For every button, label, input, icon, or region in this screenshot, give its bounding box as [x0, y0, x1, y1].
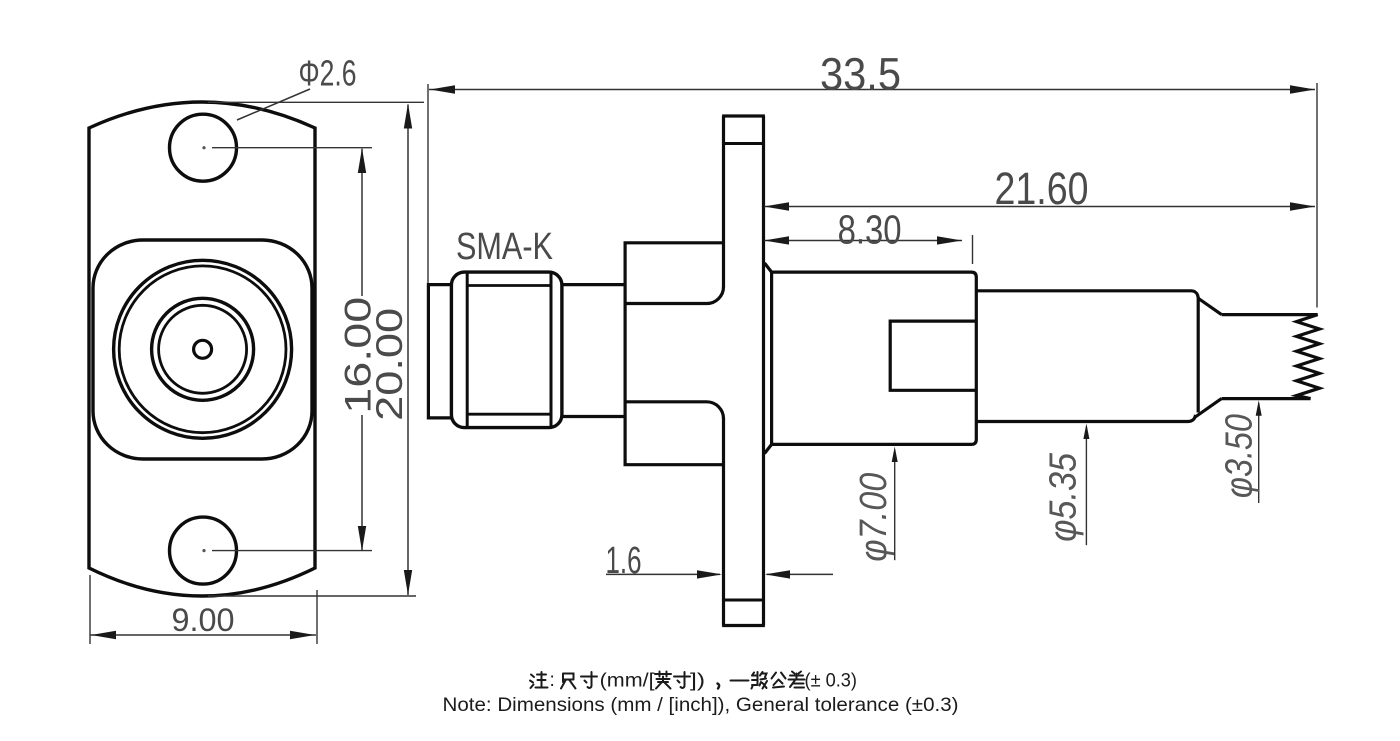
svg-text:SMA-K: SMA-K [456, 226, 553, 268]
svg-text:Note: Dimensions (mm / [inch]): Note: Dimensions (mm / [inch]), General … [443, 694, 959, 716]
svg-text:(± 0.3): (± 0.3) [805, 671, 858, 692]
svg-text:(mm/[: (mm/[ [600, 671, 656, 692]
svg-text:]): ]) [690, 671, 705, 692]
svg-text:φ7.00: φ7.00 [853, 473, 895, 562]
svg-text:8.30: 8.30 [838, 207, 902, 253]
svg-text::: : [550, 670, 555, 691]
svg-text:33.5: 33.5 [820, 49, 901, 100]
svg-text:9.00: 9.00 [172, 602, 235, 638]
svg-text:Φ2.6: Φ2.6 [299, 53, 357, 94]
svg-text:φ5.35: φ5.35 [1043, 452, 1085, 542]
svg-text:1.6: 1.6 [606, 540, 642, 582]
svg-text:20.00: 20.00 [369, 308, 410, 421]
svg-text:21.60: 21.60 [995, 163, 1089, 214]
svg-text:φ3.50: φ3.50 [1218, 414, 1260, 498]
